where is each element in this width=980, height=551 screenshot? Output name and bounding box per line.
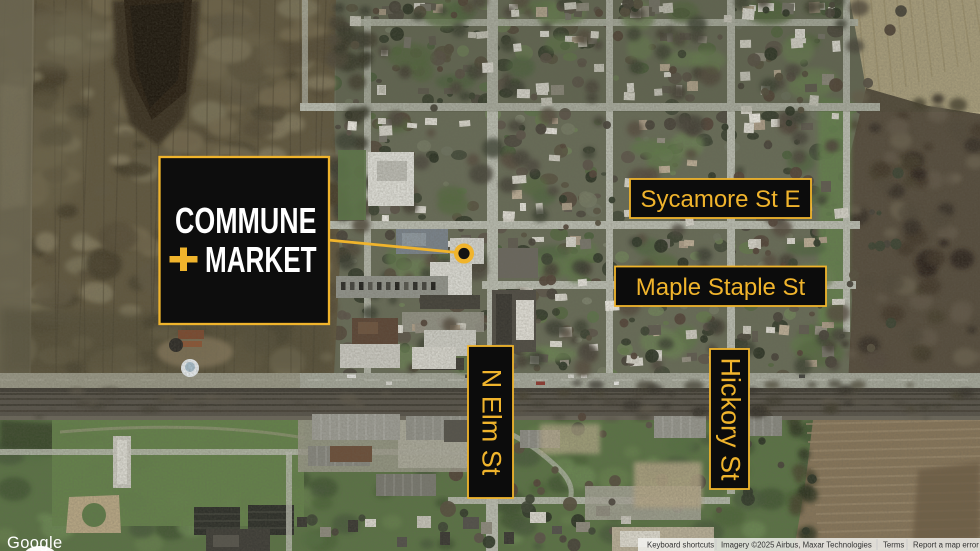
- svg-text:Imagery ©2025 Airbus, Maxar Te: Imagery ©2025 Airbus, Maxar Technologies: [721, 540, 872, 549]
- svg-text:Maple Staple St: Maple Staple St: [636, 274, 806, 301]
- svg-text:Keyboard shortcuts: Keyboard shortcuts: [647, 540, 714, 549]
- svg-text:MARKET: MARKET: [205, 239, 317, 280]
- svg-text:Terms: Terms: [883, 540, 904, 549]
- svg-text:Hickory St: Hickory St: [716, 357, 746, 481]
- svg-text:Sycamore St E: Sycamore St E: [640, 186, 800, 213]
- svg-text:COMMUNE: COMMUNE: [175, 200, 317, 241]
- svg-text:Report a map error: Report a map error: [913, 540, 979, 549]
- svg-text:Google: Google: [7, 534, 63, 551]
- svg-text:N Elm St: N Elm St: [477, 369, 507, 476]
